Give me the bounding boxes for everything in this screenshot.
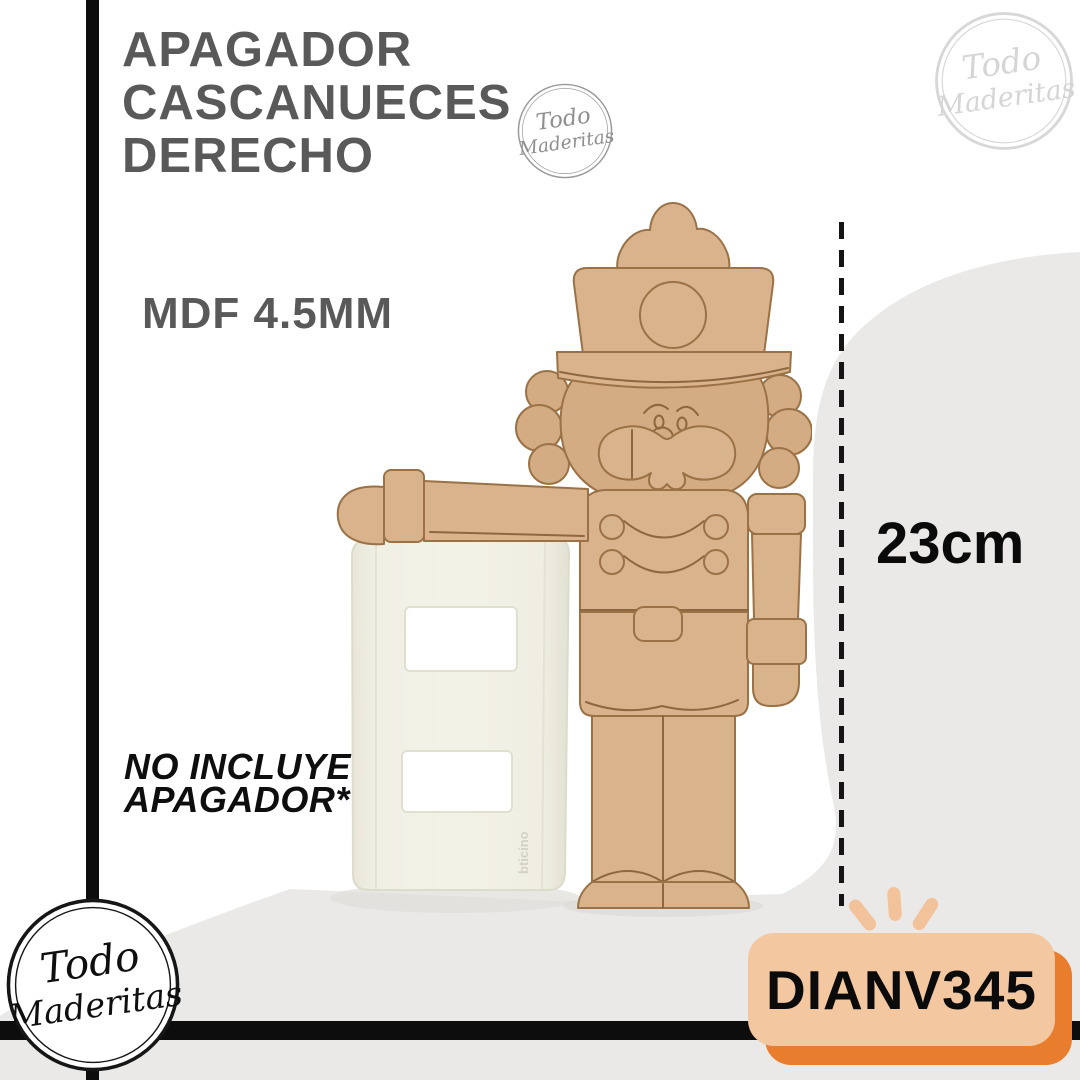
nutcracker-hat-badge [640, 282, 706, 348]
product-title: APAGADOR CASCANUECES DERECHO [122, 24, 511, 183]
title-line-2: CASCANUECES [122, 77, 511, 130]
product-card: APAGADOR CASCANUECES DERECHO MDF 4.5MM 2… [0, 0, 1080, 1080]
belt-buckle [634, 607, 682, 641]
measurement-dashed-line [839, 222, 844, 906]
title-line-1: APAGADOR [122, 24, 511, 77]
sku-code: DIANV345 [766, 958, 1037, 1022]
right-arm [752, 534, 801, 619]
disclaimer-text: NO INCLUYE APAGADOR* [124, 750, 351, 816]
switch-plate: bticino [352, 538, 569, 890]
brand-stamp-graphic: Todo Maderitas [516, 82, 614, 180]
product-photo: bticino [330, 190, 812, 920]
brand-stamp-graphic: Todo Maderitas [933, 10, 1075, 152]
plate-brand-text: bticino [516, 831, 531, 874]
sku-badge: DIANV345 [748, 933, 1055, 1046]
left-cuff [384, 470, 424, 542]
measurement-label: 23cm [876, 510, 1024, 577]
right-epaulette [748, 494, 805, 534]
material-spec: MDF 4.5MM [142, 289, 393, 339]
brand-stamp-middle: Todo Maderitas [516, 82, 614, 180]
title-line-3: DERECHO [122, 130, 511, 183]
brand-stamp-bottom-left: Todo Maderitas [4, 896, 182, 1074]
plate-cutout-top [405, 607, 517, 671]
right-hand [753, 664, 799, 706]
plate-cutout-bottom [402, 751, 512, 812]
right-cuff [747, 619, 806, 664]
disclaimer-line-2: APAGADOR* [124, 783, 351, 816]
left-hand [338, 487, 384, 545]
nutcracker-right-arm [747, 494, 806, 706]
switch-plate-body [352, 538, 569, 890]
sparkle-ray-middle [887, 887, 902, 922]
brand-stamp-graphic: Todo Maderitas [4, 896, 182, 1074]
brand-stamp-top-right: Todo Maderitas [933, 10, 1075, 152]
